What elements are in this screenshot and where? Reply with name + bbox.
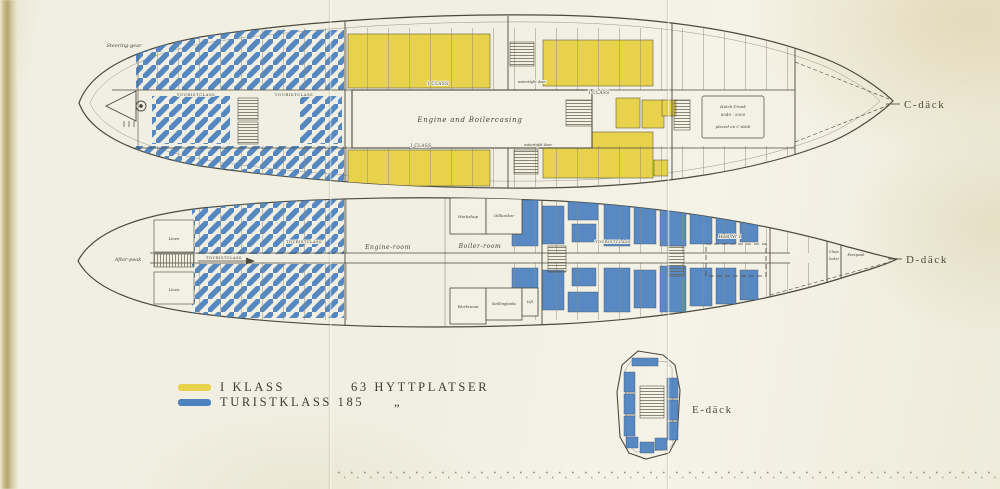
linen-label-2: Linen bbox=[168, 287, 180, 292]
watertight-door-label-bottom: watertight door bbox=[524, 143, 552, 147]
chain-locker-label-2: locker bbox=[829, 257, 840, 261]
workroom-label: Workroom bbox=[457, 304, 478, 309]
c-deck-interior bbox=[106, 16, 889, 188]
e-deck-name-label: E-däck bbox=[692, 404, 733, 416]
i-class-label-top: I CLASS bbox=[427, 81, 448, 86]
d-deck-plan: After-peak Linen Linen TOURISTCLASS TOUR… bbox=[78, 196, 948, 327]
hold-label: Hold Nr 1 bbox=[718, 234, 742, 240]
c-deck-name-label: C-däck bbox=[904, 99, 945, 111]
c-touristclass-label-1: TOURISTCLASS bbox=[177, 92, 215, 97]
first-class-color-swatch bbox=[178, 384, 211, 391]
chain-locker-label-1: Chain bbox=[829, 250, 838, 254]
oilbunker-label: Oilbunker bbox=[494, 213, 515, 218]
i-class-label-right: I CLASS bbox=[588, 90, 609, 95]
e-deck-plan: E-däck bbox=[617, 351, 733, 459]
d-touristclass-label-2: TOURISTCLASS bbox=[286, 240, 322, 244]
d-touristclass-label-3: TOURISTCLASS bbox=[595, 240, 631, 244]
d-deck-partitions-aft-top bbox=[192, 196, 352, 253]
c-deck-plan: Steering-gear TOURISTCLASS TOURISTCLASS … bbox=[79, 15, 945, 188]
e-deck-stairway bbox=[640, 386, 664, 418]
d-deck-partitions-aft-bottom bbox=[192, 263, 352, 320]
tourist-class-label: TURISTKLASS 185 bbox=[220, 395, 394, 410]
hatch-note-line-1: Hatch-Trunk bbox=[719, 104, 746, 109]
first-class-berths: 63 HYTTPLATSER bbox=[351, 380, 489, 395]
brochure-page: Steering-gear TOURISTCLASS TOURISTCLASS … bbox=[0, 0, 1000, 489]
c-touristclass-label-2: TOURISTCLASS bbox=[275, 92, 313, 97]
steering-gear-label: Steering-gear bbox=[107, 43, 143, 49]
c-deck-partitions-top bbox=[138, 28, 795, 90]
lift-label: Lift bbox=[526, 300, 534, 304]
tourist-class-color-swatch bbox=[178, 399, 211, 406]
i-class-label-bottom: I CLASS bbox=[410, 143, 431, 148]
steering-gear-glyph bbox=[106, 91, 146, 127]
after-peak-label: After-peak bbox=[114, 257, 142, 263]
hatch-trunk-box bbox=[702, 96, 764, 138]
c-deck-bow-lines bbox=[795, 62, 889, 142]
perforation-dots bbox=[338, 473, 998, 478]
page-fold-edge bbox=[0, 0, 18, 489]
workshop-label: Workshop bbox=[458, 214, 479, 219]
tourist-class-berths-ditto: „ bbox=[394, 395, 402, 410]
hatch-note-line-3: placed on C-däck bbox=[716, 124, 752, 129]
forepeak-label: Forepeak bbox=[846, 253, 864, 257]
c-deck-partitions-bottom bbox=[138, 146, 795, 188]
watertight-door-label-top: watertight door bbox=[518, 80, 546, 84]
boiler-room-label: Boiler-room bbox=[458, 243, 502, 250]
settlingtanks-label: Settlingtanks bbox=[492, 302, 516, 306]
deck-plans-drawing: Steering-gear TOURISTCLASS TOURISTCLASS … bbox=[0, 0, 1000, 489]
legend-row-tourist-class: TURISTKLASS 185 „ bbox=[178, 395, 489, 410]
d-deck-partitions-fwd-top bbox=[505, 196, 820, 253]
engine-room-label: Engine-room bbox=[364, 244, 411, 251]
legend: I KLASS 63 HYTTPLATSER TURISTKLASS 185 „ bbox=[178, 380, 489, 410]
legend-row-first-class: I KLASS 63 HYTTPLATSER bbox=[178, 380, 489, 395]
d-deck-name-label: D-däck bbox=[906, 254, 948, 266]
d-deck-interior bbox=[150, 196, 893, 326]
first-class-label: I KLASS bbox=[220, 380, 351, 395]
hatch-note-line-2: 6049 - 5000 bbox=[721, 112, 746, 117]
engine-casing-label: Engine and Boilercasing bbox=[416, 116, 522, 124]
linen-label-1: Linen bbox=[168, 236, 180, 241]
d-touristclass-label-1: TOURISTCLASS bbox=[206, 256, 242, 260]
